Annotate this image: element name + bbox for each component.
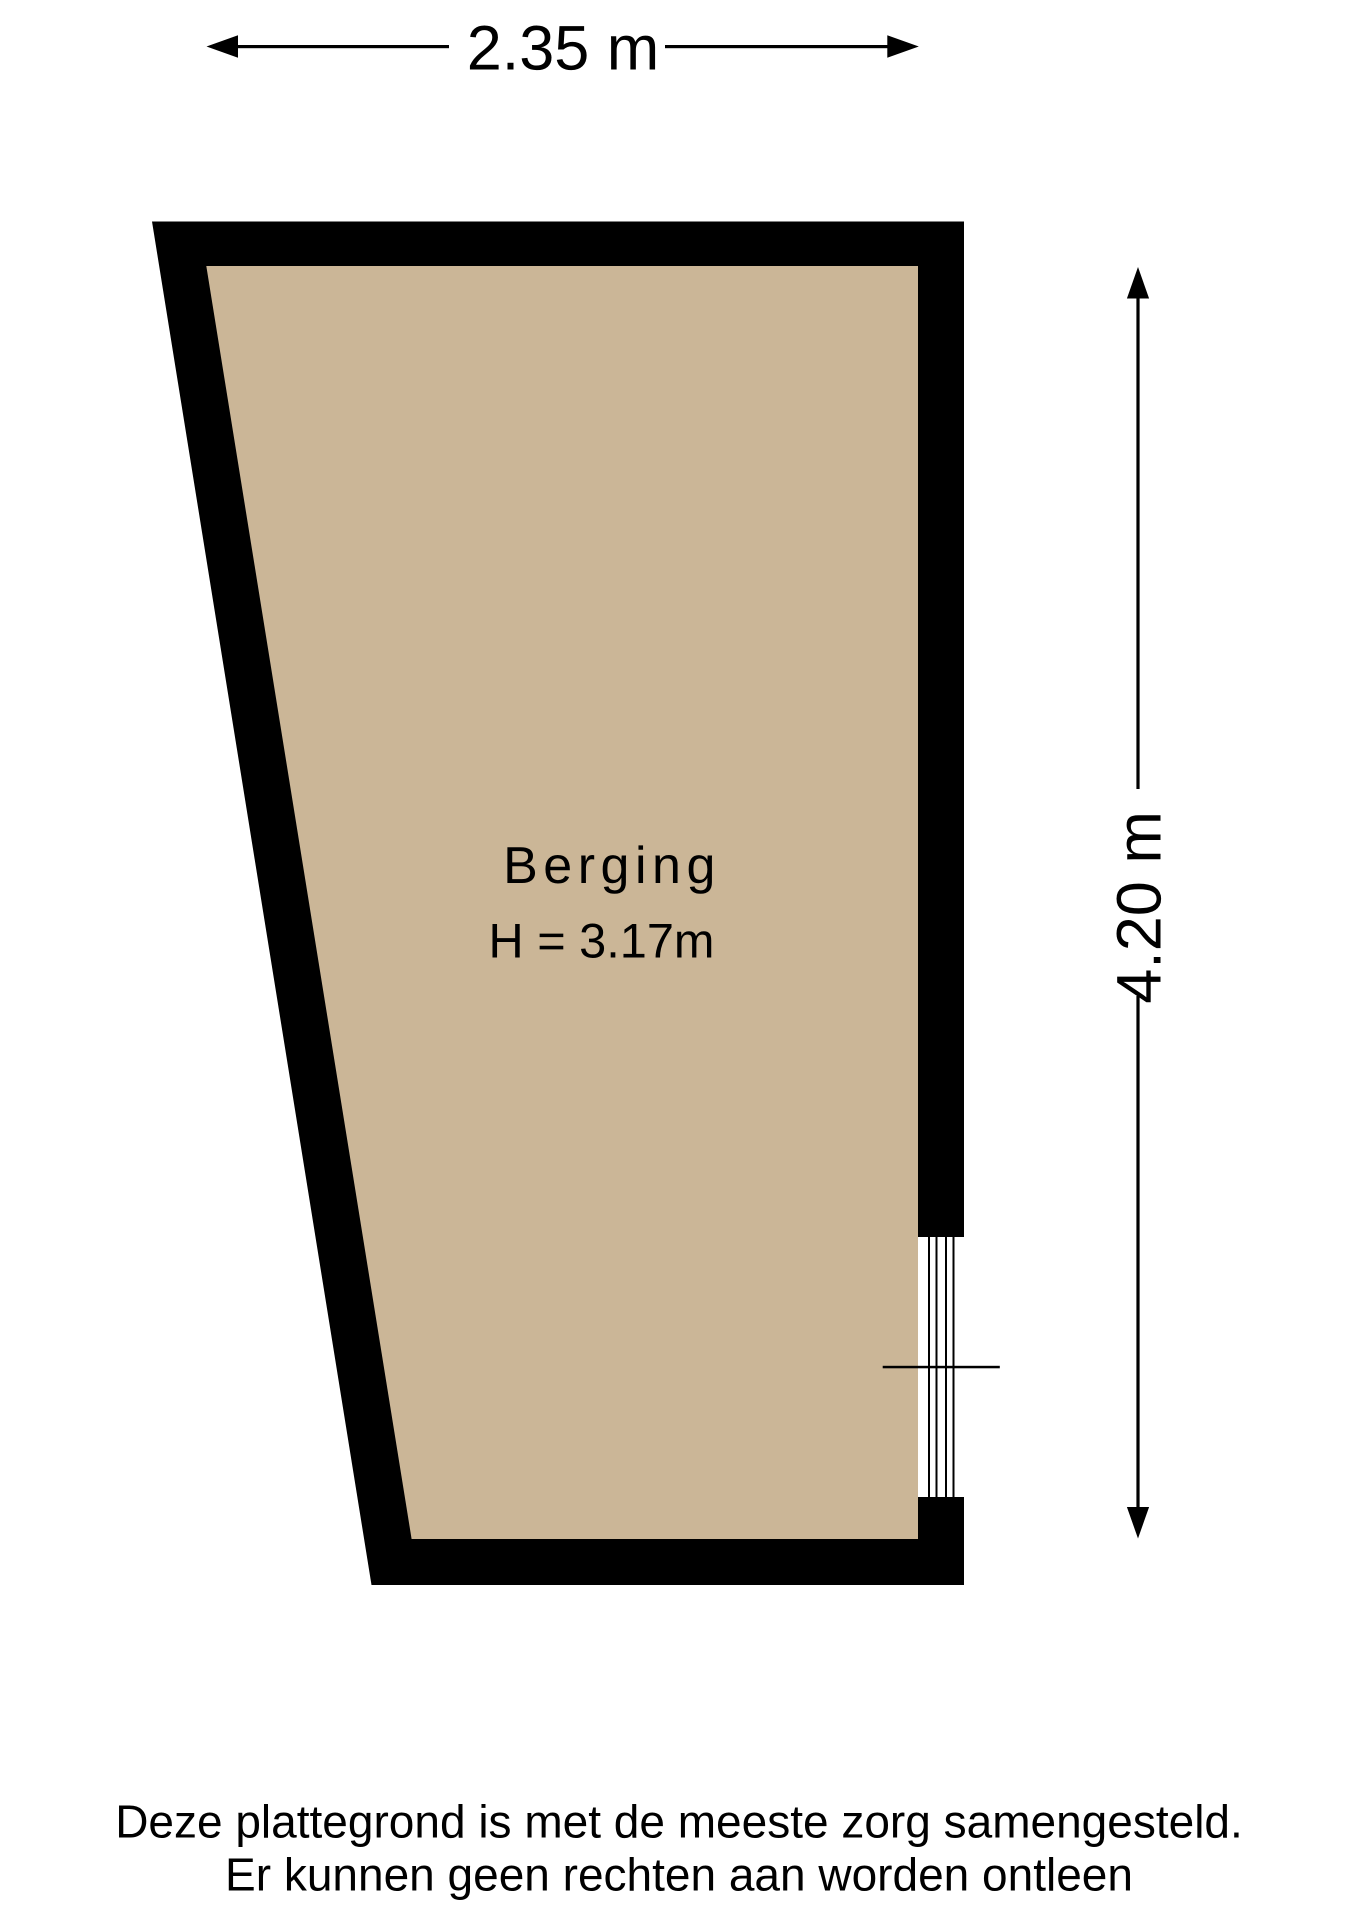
svg-text:4.20 m: 4.20 m <box>1105 811 1175 1004</box>
svg-text:2.35 m: 2.35 m <box>467 14 660 84</box>
svg-text:Er kunnen geen rechten aan wor: Er kunnen geen rechten aan worden ontlee… <box>225 1849 1133 1901</box>
svg-text:H = 3.17m: H = 3.17m <box>489 915 715 969</box>
svg-text:Berging: Berging <box>503 837 721 895</box>
svg-text:Deze plattegrond is met de mee: Deze plattegrond is met de meeste zorg s… <box>115 1795 1243 1847</box>
